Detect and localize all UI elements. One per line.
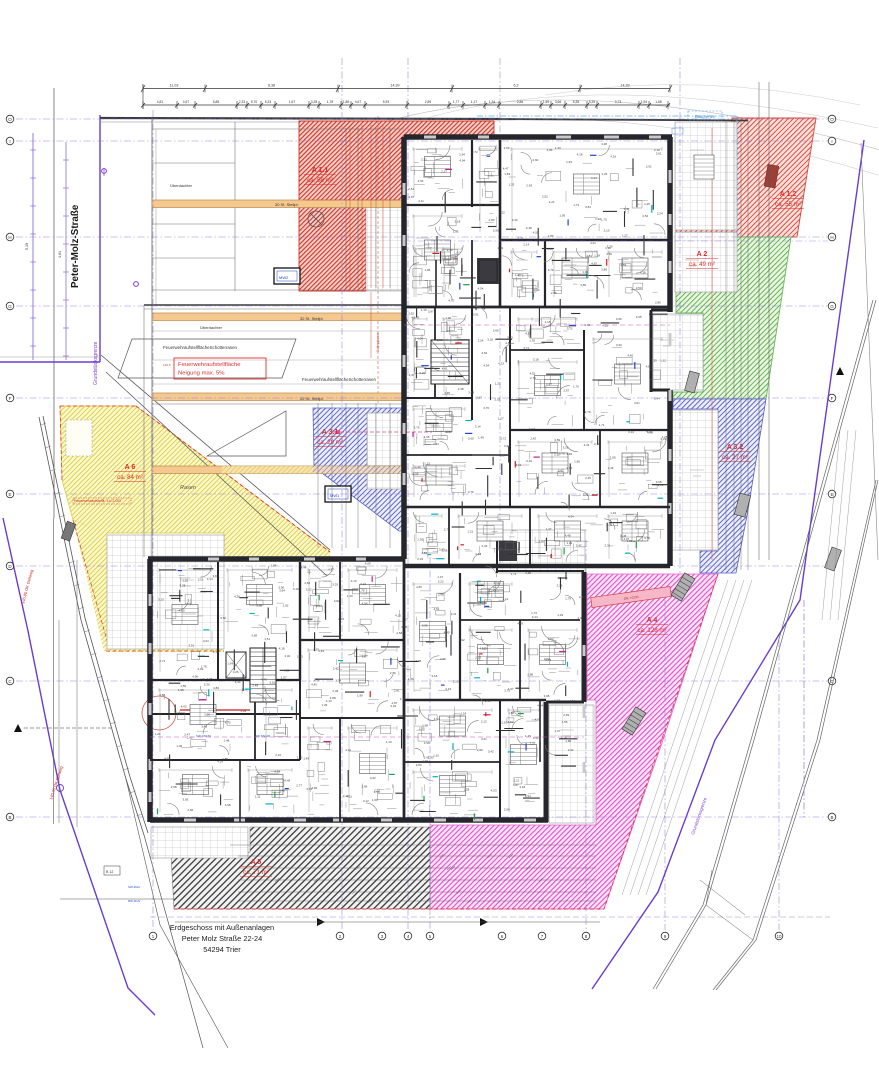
svg-text:ca. 55 m²: ca. 55 m² (775, 201, 801, 208)
svg-text:1,19: 1,19 (610, 511, 616, 515)
svg-text:3,22: 3,22 (360, 582, 366, 586)
svg-text:4,62: 4,62 (370, 776, 376, 780)
svg-text:1,46: 1,46 (279, 789, 285, 793)
svg-text:2,47: 2,47 (529, 427, 535, 431)
svg-text:2,93: 2,93 (526, 184, 532, 188)
svg-text:1,33: 1,33 (509, 183, 515, 187)
svg-text:2,69: 2,69 (563, 713, 569, 717)
svg-text:6,2: 6,2 (514, 84, 519, 88)
svg-text:2,92: 2,92 (579, 595, 585, 599)
svg-text:3,65: 3,65 (439, 547, 445, 551)
svg-text:3,18: 3,18 (519, 785, 525, 789)
svg-text:2,90: 2,90 (504, 555, 510, 559)
svg-text:2,38: 2,38 (458, 387, 464, 391)
svg-text:1,68: 1,68 (655, 100, 662, 104)
svg-text:2,47: 2,47 (333, 666, 339, 670)
svg-text:2,40: 2,40 (594, 442, 600, 446)
svg-text:4,65: 4,65 (416, 585, 422, 589)
svg-text:3,12: 3,12 (363, 799, 369, 803)
svg-text:4,48: 4,48 (601, 142, 607, 146)
svg-text:2,11: 2,11 (554, 452, 560, 456)
svg-text:3,10: 3,10 (526, 459, 532, 463)
svg-text:2,71: 2,71 (159, 659, 165, 663)
svg-text:1,39: 1,39 (322, 703, 328, 707)
svg-text:1,17: 1,17 (471, 100, 478, 104)
svg-text:3,35: 3,35 (204, 683, 210, 687)
svg-text:4,54: 4,54 (478, 287, 484, 291)
svg-text:4,60: 4,60 (179, 609, 185, 613)
svg-text:3,75: 3,75 (504, 689, 510, 693)
svg-text:1,27: 1,27 (326, 741, 332, 745)
svg-text:2,53: 2,53 (495, 397, 501, 401)
svg-text:3,28: 3,28 (311, 100, 318, 104)
svg-text:1,16: 1,16 (421, 308, 427, 312)
svg-text:1,37: 1,37 (546, 527, 552, 531)
svg-text:5,85: 5,85 (213, 100, 220, 104)
svg-text:2,33: 2,33 (482, 544, 488, 548)
svg-text:2,31: 2,31 (605, 543, 611, 547)
svg-text:Überdachter: Überdachter (200, 325, 223, 330)
svg-text:1,64: 1,64 (227, 662, 233, 666)
svg-text:4,66: 4,66 (304, 581, 310, 585)
svg-text:1,70: 1,70 (601, 218, 607, 222)
svg-text:4,49: 4,49 (284, 778, 290, 782)
svg-text:2,51: 2,51 (408, 187, 414, 191)
svg-text:1,34: 1,34 (240, 709, 246, 713)
svg-text:4,96: 4,96 (192, 674, 198, 678)
svg-text:Feuerwehraufstellfl. 1.u.2.OG: Feuerwehraufstellfl. 1.u.2.OG (74, 499, 121, 503)
svg-text:4,67: 4,67 (183, 100, 190, 104)
svg-text:Grundstücksgrenze: Grundstücksgrenze (93, 341, 99, 385)
svg-text:4,13: 4,13 (351, 579, 357, 583)
svg-text:3,91: 3,91 (473, 312, 479, 316)
svg-text:E: E (8, 492, 11, 497)
svg-text:1,27: 1,27 (530, 742, 536, 746)
svg-text:1,98: 1,98 (178, 688, 184, 692)
svg-text:2,44: 2,44 (338, 617, 344, 621)
svg-text:3,66: 3,66 (555, 100, 562, 104)
svg-text:1,89: 1,89 (497, 246, 503, 250)
svg-text:2,14: 2,14 (500, 453, 506, 457)
svg-text:2,86: 2,86 (527, 672, 533, 676)
svg-text:4,83: 4,83 (213, 686, 219, 690)
svg-text:4,54: 4,54 (483, 364, 489, 368)
svg-text:1,77: 1,77 (453, 100, 460, 104)
svg-text:4,86: 4,86 (547, 148, 553, 152)
svg-text:4,49: 4,49 (415, 465, 421, 469)
svg-text:3,21: 3,21 (451, 612, 457, 616)
svg-text:4,70: 4,70 (448, 299, 454, 303)
svg-text:3,30: 3,30 (447, 248, 453, 252)
svg-text:1,22: 1,22 (182, 579, 188, 583)
svg-text:Baugrenze: Baugrenze (695, 114, 716, 119)
svg-text:3,82: 3,82 (334, 599, 340, 603)
svg-text:ca. 128 m²: ca. 128 m² (637, 627, 666, 634)
svg-text:1,97: 1,97 (409, 373, 415, 377)
svg-text:1,10: 1,10 (386, 740, 392, 744)
svg-text:2,58: 2,58 (171, 785, 177, 789)
svg-text:ca. 49 m²: ca. 49 m² (689, 261, 715, 268)
svg-text:1,48: 1,48 (224, 739, 230, 743)
svg-text:1,69: 1,69 (372, 798, 378, 802)
svg-text:10: 10 (776, 934, 782, 939)
svg-text:5,39: 5,39 (589, 100, 596, 104)
svg-text:4,23: 4,23 (498, 361, 504, 365)
svg-text:4,26: 4,26 (602, 172, 608, 176)
svg-text:1,69: 1,69 (543, 100, 550, 104)
svg-text:4,11: 4,11 (418, 199, 424, 203)
svg-text:1,90: 1,90 (582, 270, 588, 274)
svg-text:4,56: 4,56 (424, 741, 430, 745)
svg-text:4,28: 4,28 (234, 595, 240, 599)
svg-text:2,21: 2,21 (514, 778, 520, 782)
svg-text:2,92: 2,92 (646, 165, 652, 169)
svg-text:3,44: 3,44 (532, 615, 538, 619)
svg-text:2,51: 2,51 (189, 644, 195, 648)
svg-text:A 2: A 2 (697, 251, 708, 258)
svg-text:1,35: 1,35 (529, 339, 535, 343)
svg-text:FeuerwehraufstellflächeSchotte: FeuerwehraufstellflächeSchotterrasen (163, 345, 238, 350)
svg-text:2,90: 2,90 (493, 229, 499, 233)
svg-text:2,49: 2,49 (332, 689, 338, 693)
svg-text:4,44: 4,44 (301, 565, 307, 569)
svg-text:3,50: 3,50 (256, 604, 262, 608)
svg-text:1,49: 1,49 (303, 756, 309, 760)
svg-text:1,56: 1,56 (562, 720, 568, 724)
svg-text:1,39: 1,39 (626, 539, 632, 543)
svg-text:3,50: 3,50 (636, 286, 642, 290)
svg-text:2,47: 2,47 (184, 732, 190, 736)
svg-text:3,83: 3,83 (312, 786, 318, 790)
svg-text:1,13: 1,13 (424, 461, 430, 465)
svg-text:SW DN150: SW DN150 (196, 734, 211, 738)
svg-text:O: O (8, 117, 12, 122)
svg-text:4,81: 4,81 (586, 254, 592, 258)
svg-text:2,33: 2,33 (239, 100, 246, 104)
svg-text:1,49: 1,49 (478, 436, 484, 440)
svg-text:1,92: 1,92 (283, 603, 289, 607)
svg-text:3,19: 3,19 (445, 687, 451, 691)
svg-text:2,14: 2,14 (523, 242, 529, 246)
svg-text:4,97: 4,97 (408, 195, 414, 199)
svg-text:3,18: 3,18 (533, 357, 539, 361)
svg-text:4,51: 4,51 (634, 401, 640, 405)
svg-text:1,99: 1,99 (357, 694, 363, 698)
svg-text:A 4: A 4 (647, 617, 658, 624)
svg-text:4,64: 4,64 (434, 717, 440, 721)
svg-text:4,10: 4,10 (569, 699, 575, 703)
svg-text:3,86: 3,86 (159, 693, 165, 697)
svg-text:1,36: 1,36 (176, 744, 182, 748)
svg-text:14,39: 14,39 (391, 84, 400, 88)
svg-text:2,71: 2,71 (583, 492, 589, 496)
svg-text:3,71: 3,71 (518, 237, 524, 241)
svg-text:4,50: 4,50 (606, 252, 612, 256)
svg-text:2,86: 2,86 (517, 100, 524, 104)
svg-text:4,63: 4,63 (181, 705, 187, 709)
svg-text:3,14: 3,14 (207, 577, 213, 581)
svg-text:54294 Trier: 54294 Trier (203, 945, 241, 954)
svg-text:1,66: 1,66 (574, 460, 580, 464)
svg-text:ca. 71 m²: ca. 71 m² (243, 869, 269, 876)
svg-text:2,19: 2,19 (654, 148, 660, 152)
svg-text:3,72: 3,72 (472, 150, 478, 154)
svg-text:2,80: 2,80 (477, 748, 483, 752)
svg-text:1,10: 1,10 (347, 594, 353, 598)
svg-text:4,67: 4,67 (505, 341, 511, 345)
svg-text:3,76: 3,76 (483, 406, 489, 410)
svg-text:B 12: B 12 (106, 870, 113, 874)
svg-text:4,10: 4,10 (213, 650, 219, 654)
svg-text:4,61: 4,61 (58, 251, 62, 258)
svg-text:1,11: 1,11 (255, 795, 261, 799)
svg-text:1,46: 1,46 (515, 273, 521, 277)
svg-text:3,76: 3,76 (468, 490, 474, 494)
svg-text:3,14: 3,14 (475, 425, 481, 429)
svg-text:1,10: 1,10 (433, 753, 439, 757)
svg-text:4,18: 4,18 (577, 153, 583, 157)
svg-text:4,58: 4,58 (374, 790, 380, 794)
svg-text:4,59: 4,59 (554, 438, 560, 442)
svg-text:Überdachter: Überdachter (170, 183, 193, 188)
svg-text:Peter Molz Straße 22-24: Peter Molz Straße 22-24 (182, 934, 263, 943)
svg-text:4,81: 4,81 (157, 100, 164, 104)
svg-text:2,24: 2,24 (316, 604, 322, 608)
svg-text:2,86: 2,86 (655, 301, 661, 305)
svg-text:4,97: 4,97 (392, 701, 398, 705)
svg-text:1,92: 1,92 (459, 638, 465, 642)
svg-text:1,86: 1,86 (565, 739, 571, 743)
svg-text:1,18: 1,18 (545, 320, 551, 324)
svg-text:2,18: 2,18 (432, 674, 438, 678)
svg-text:4,25: 4,25 (602, 324, 608, 328)
svg-text:1,29: 1,29 (557, 613, 563, 617)
svg-text:3,22: 3,22 (419, 371, 425, 375)
svg-text:3,55: 3,55 (538, 540, 544, 544)
svg-text:2,22: 2,22 (499, 210, 505, 214)
svg-text:3,85: 3,85 (422, 623, 428, 627)
svg-text:2,60: 2,60 (533, 158, 539, 162)
svg-text:2,66: 2,66 (362, 784, 368, 788)
svg-text:3,26: 3,26 (204, 713, 210, 717)
svg-text:11,03: 11,03 (170, 84, 179, 88)
svg-text:4,31: 4,31 (507, 720, 513, 724)
svg-text:2,77: 2,77 (296, 784, 302, 788)
svg-text:I: I (9, 139, 10, 144)
svg-text:2,91: 2,91 (485, 699, 491, 703)
svg-text:1,18: 1,18 (400, 697, 406, 701)
svg-text:1,83: 1,83 (504, 172, 510, 176)
svg-text:3,28: 3,28 (180, 583, 186, 587)
svg-text:1,18: 1,18 (594, 254, 600, 258)
svg-text:14,39: 14,39 (621, 84, 630, 88)
svg-text:1,36: 1,36 (417, 537, 423, 541)
svg-text:2,76: 2,76 (444, 527, 450, 531)
svg-text:3,19: 3,19 (293, 587, 299, 591)
svg-text:1,12: 1,12 (503, 597, 509, 601)
svg-text:3,88: 3,88 (601, 268, 607, 272)
svg-text:3,20: 3,20 (453, 680, 459, 684)
svg-text:1,78: 1,78 (327, 100, 334, 104)
svg-text:B: B (830, 815, 833, 820)
svg-text:2,12: 2,12 (481, 719, 487, 723)
svg-text:1,27: 1,27 (622, 234, 628, 238)
svg-text:3,68: 3,68 (468, 390, 474, 394)
svg-text:4,38: 4,38 (640, 271, 646, 275)
svg-text:1,83: 1,83 (421, 551, 427, 555)
svg-text:4,40: 4,40 (627, 354, 633, 358)
svg-text:3,22: 3,22 (438, 580, 444, 584)
svg-text:3,62: 3,62 (408, 311, 414, 315)
svg-text:I: I (831, 139, 832, 144)
svg-text:1,37: 1,37 (554, 729, 560, 733)
svg-text:4,29: 4,29 (661, 437, 667, 441)
svg-text:4,56: 4,56 (642, 214, 648, 218)
svg-text:1,78: 1,78 (359, 589, 365, 593)
svg-text:30 St. Stellpl.: 30 St. Stellpl. (275, 202, 299, 207)
svg-text:4,67: 4,67 (355, 100, 362, 104)
svg-text:1,27: 1,27 (498, 416, 504, 420)
svg-text:4,76: 4,76 (261, 677, 267, 681)
svg-text:4,77: 4,77 (328, 568, 334, 572)
svg-text:4,23: 4,23 (491, 789, 497, 793)
svg-text:2,84: 2,84 (271, 564, 277, 568)
svg-text:Schleppkurve: Schleppkurve (376, 332, 380, 352)
svg-text:3,55: 3,55 (580, 283, 586, 287)
svg-text:1,92: 1,92 (422, 759, 428, 763)
svg-text:3,69: 3,69 (616, 317, 622, 321)
svg-text:4,85: 4,85 (222, 757, 228, 761)
svg-text:2,18: 2,18 (455, 219, 461, 223)
svg-text:3,87: 3,87 (513, 783, 519, 787)
svg-text:1,21: 1,21 (495, 382, 501, 386)
svg-text:1,37: 1,37 (437, 575, 443, 579)
svg-text:2,21: 2,21 (646, 505, 652, 509)
svg-text:3,97: 3,97 (428, 310, 434, 314)
svg-text:1,32: 1,32 (284, 654, 290, 658)
svg-text:4,39: 4,39 (235, 680, 241, 684)
svg-text:3,47: 3,47 (624, 207, 630, 211)
svg-text:5,35: 5,35 (573, 100, 580, 104)
svg-text:2,51: 2,51 (198, 577, 204, 581)
svg-text:4,48: 4,48 (565, 533, 571, 537)
svg-text:1,12: 1,12 (660, 359, 666, 363)
svg-text:3,79: 3,79 (548, 268, 554, 272)
svg-text:8,38: 8,38 (268, 84, 275, 88)
svg-text:1,51: 1,51 (264, 637, 270, 641)
svg-text:3,36: 3,36 (557, 583, 563, 587)
svg-text:2,45: 2,45 (585, 476, 591, 480)
svg-text:3,10: 3,10 (269, 680, 275, 684)
svg-text:4,53: 4,53 (274, 770, 280, 774)
svg-text:3,81: 3,81 (213, 574, 219, 578)
svg-text:1,83: 1,83 (297, 654, 303, 658)
svg-text:E: E (830, 492, 833, 497)
svg-text:1,94: 1,94 (566, 160, 572, 164)
svg-text:4,86: 4,86 (646, 365, 652, 369)
svg-text:3,68: 3,68 (251, 634, 257, 638)
svg-text:2,59: 2,59 (504, 146, 510, 150)
svg-text:2,92: 2,92 (198, 667, 204, 671)
svg-text:2,31: 2,31 (568, 748, 574, 752)
svg-text:G: G (830, 304, 834, 309)
svg-text:5,70: 5,70 (251, 100, 258, 104)
svg-text:4,94: 4,94 (459, 159, 465, 163)
svg-text:4,34: 4,34 (578, 616, 584, 620)
svg-text:2,48: 2,48 (252, 684, 258, 688)
svg-text:2,89: 2,89 (425, 100, 432, 104)
svg-text:ca. 29 m²: ca. 29 m² (317, 439, 343, 446)
svg-text:3,26: 3,26 (233, 670, 239, 674)
svg-text:5,33: 5,33 (265, 100, 272, 104)
svg-text:4,47: 4,47 (503, 167, 509, 171)
svg-text:1,97: 1,97 (554, 699, 560, 703)
svg-text:4,96: 4,96 (207, 677, 213, 681)
svg-text:3,33: 3,33 (616, 343, 622, 347)
svg-text:4,64: 4,64 (203, 639, 209, 643)
svg-text:146,5: 146,5 (163, 363, 171, 367)
svg-text:2,32: 2,32 (421, 158, 427, 162)
svg-text:1,62: 1,62 (297, 756, 303, 760)
svg-text:2,68: 2,68 (438, 592, 444, 596)
svg-text:A 6: A 6 (125, 464, 136, 471)
svg-text:1,95: 1,95 (559, 214, 565, 218)
svg-text:4,58: 4,58 (396, 631, 402, 635)
svg-text:3,18: 3,18 (487, 338, 493, 342)
svg-text:3,54: 3,54 (481, 351, 487, 355)
svg-text:2,16: 2,16 (275, 753, 281, 757)
svg-text:4,19: 4,19 (217, 759, 223, 763)
svg-text:4,91: 4,91 (480, 647, 486, 651)
svg-text:1,86: 1,86 (425, 268, 431, 272)
svg-text:1,87: 1,87 (362, 654, 368, 658)
svg-text:G: G (8, 304, 12, 309)
svg-text:3,54: 3,54 (418, 179, 424, 183)
svg-text:3,13: 3,13 (566, 466, 572, 470)
svg-text:2,27: 2,27 (441, 170, 447, 174)
svg-text:4,41: 4,41 (442, 366, 448, 370)
svg-text:2,69: 2,69 (493, 328, 499, 332)
svg-text:3,99: 3,99 (401, 625, 407, 629)
svg-text:4,25: 4,25 (525, 571, 531, 575)
svg-text:Erdgeschoss mit Außenanlagen: Erdgeschoss mit Außenanlagen (170, 923, 274, 932)
svg-text:3,22: 3,22 (306, 587, 312, 591)
svg-text:4,21: 4,21 (549, 200, 555, 204)
svg-text:3,60: 3,60 (468, 437, 474, 441)
svg-text:2,11: 2,11 (516, 463, 522, 467)
svg-text:2,66: 2,66 (187, 808, 193, 812)
svg-text:4,94: 4,94 (362, 602, 368, 606)
svg-text:4,52: 4,52 (530, 372, 536, 376)
svg-text:4,22: 4,22 (535, 717, 541, 721)
svg-text:A 3.1: A 3.1 (322, 429, 339, 436)
svg-text:1,95: 1,95 (610, 455, 616, 459)
svg-text:1,58: 1,58 (508, 711, 514, 715)
svg-text:1,73: 1,73 (573, 203, 579, 207)
svg-text:4,98: 4,98 (225, 803, 231, 807)
svg-text:1,18: 1,18 (460, 711, 466, 715)
svg-text:4,35: 4,35 (444, 391, 450, 395)
svg-text:4,70: 4,70 (225, 721, 231, 725)
svg-text:3,62: 3,62 (548, 637, 554, 641)
svg-text:1,93: 1,93 (595, 217, 601, 221)
svg-text:1,69: 1,69 (566, 452, 572, 456)
svg-text:2,96: 2,96 (440, 657, 446, 661)
svg-text:1,98: 1,98 (422, 724, 428, 728)
svg-text:3,61: 3,61 (656, 152, 662, 156)
svg-text:MW2: MW2 (279, 275, 289, 280)
svg-text:3,47: 3,47 (558, 469, 564, 473)
